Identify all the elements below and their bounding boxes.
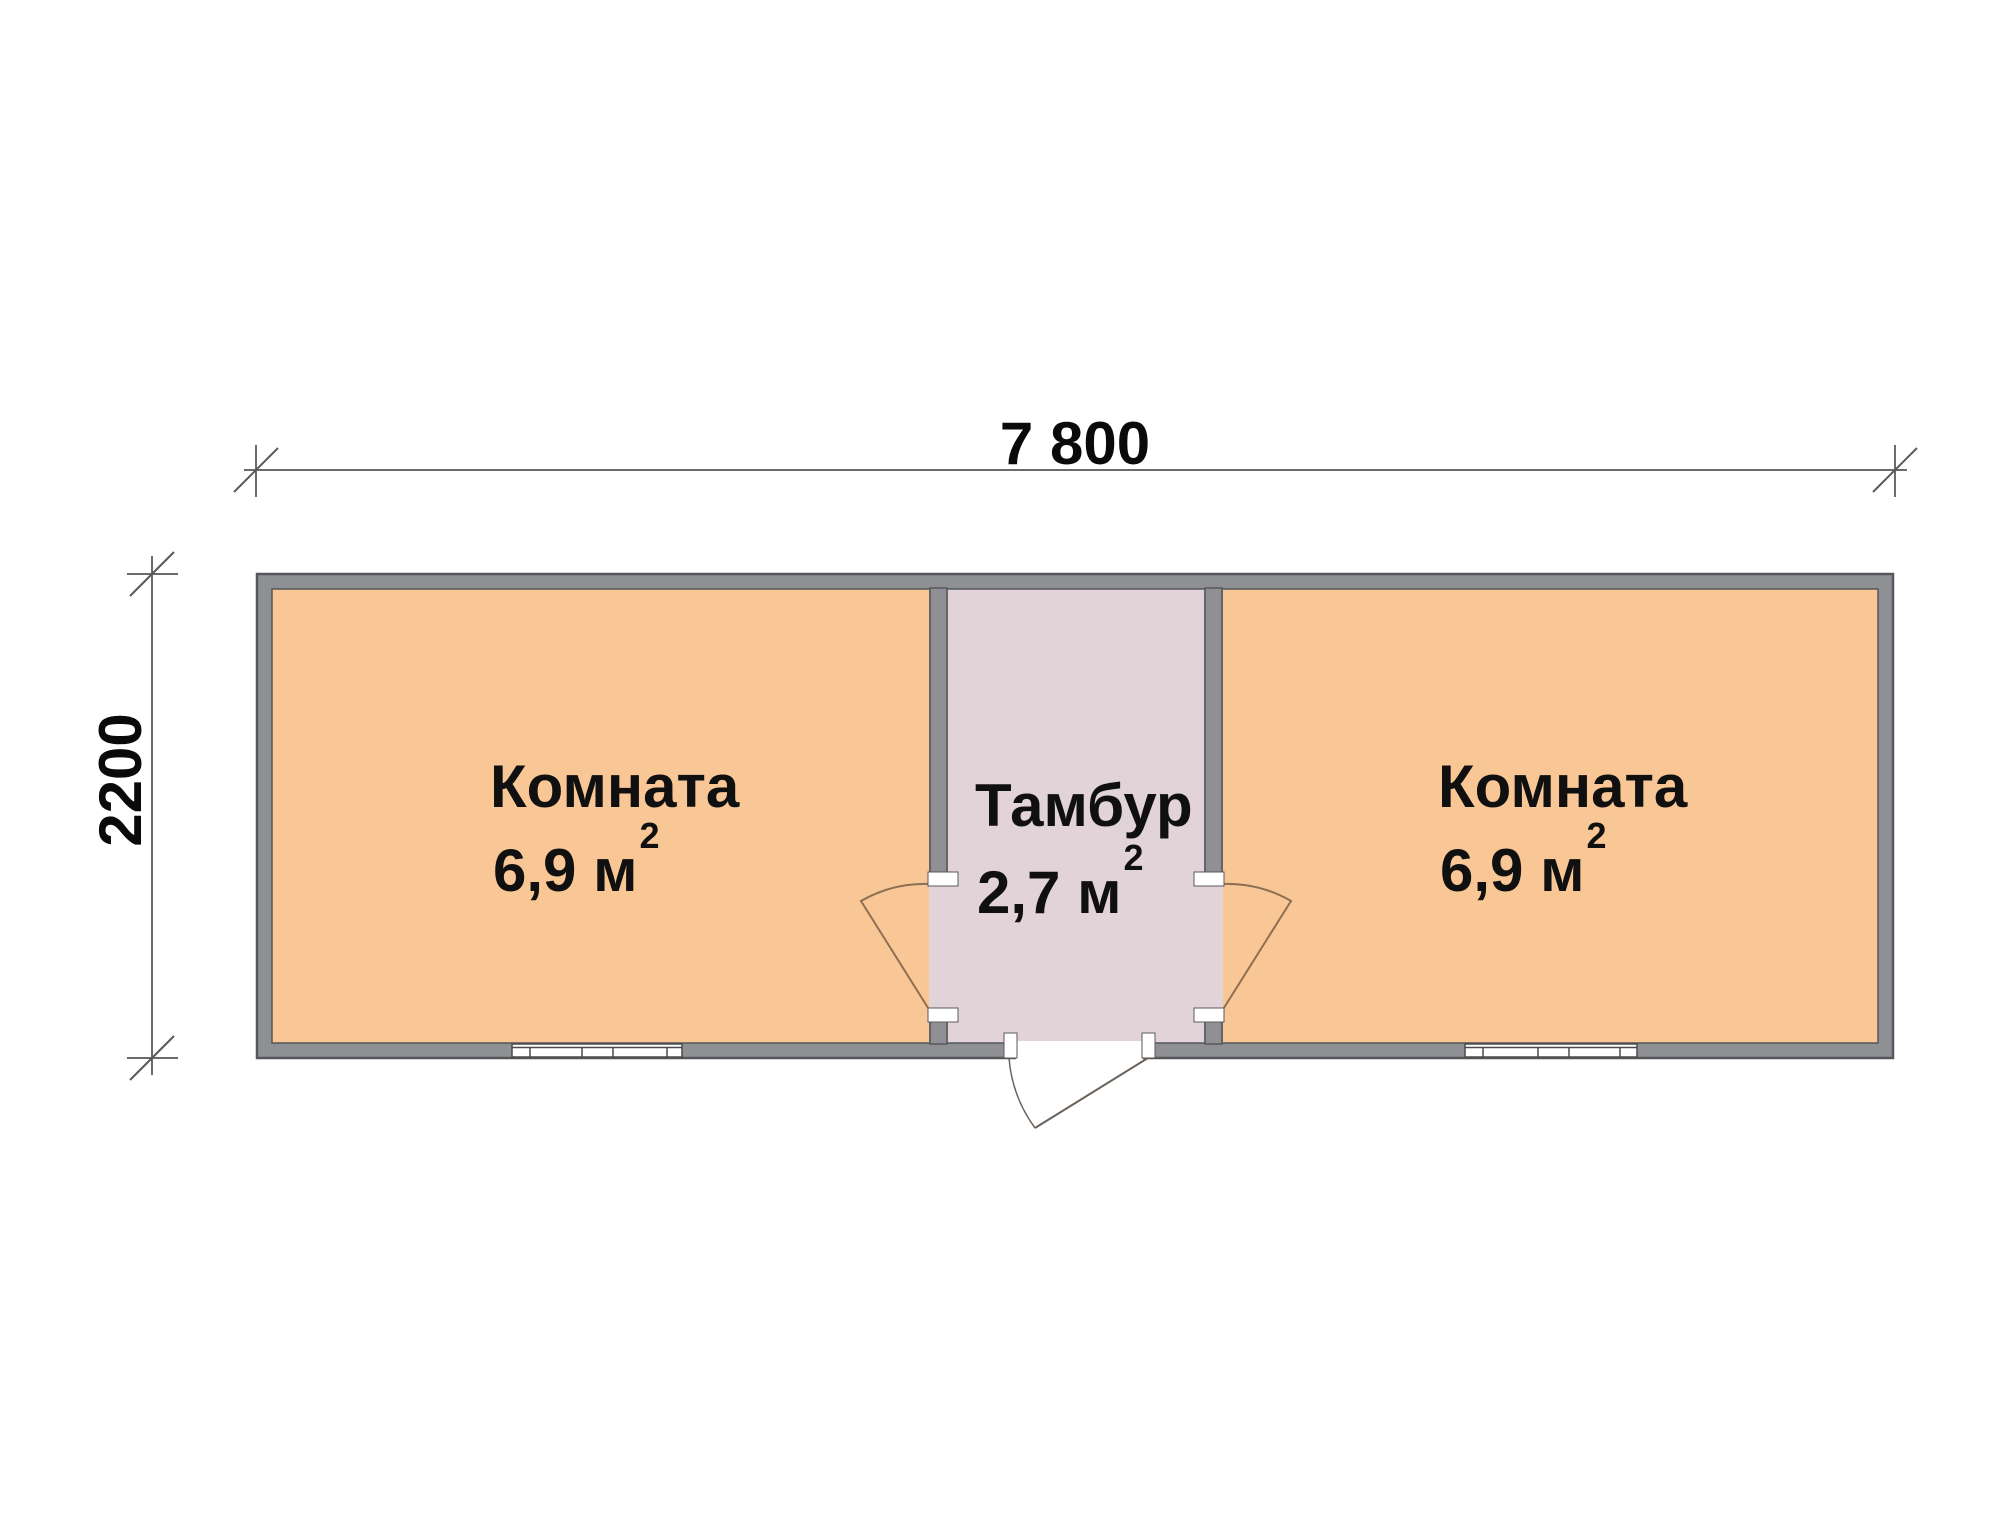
entrance-jamb-right [1142,1033,1155,1058]
room-left-area-label: 6,9 м2 [493,840,658,901]
window-left [512,1044,682,1057]
entrance-opening [1016,1041,1143,1061]
door-jamb-left-top [928,872,958,886]
floor-plan-page: 7 800 2200 Комната 6,9 м2 Тамбур 2,7 м2 … [0,0,2000,1538]
room-right-area-exp: 2 [1586,815,1606,856]
entrance-door-arc [1009,1058,1035,1128]
room-right-name-label: Комната [1438,757,1687,817]
vestibule-area-exp: 2 [1123,837,1143,878]
dim-height-label: 2200 [90,630,152,930]
door-jamb-right-bottom [1194,1008,1224,1022]
door-jamb-right-top [1194,872,1224,886]
vestibule-area-label: 2,7 м2 [977,862,1142,923]
room-right-area-label: 6,9 м2 [1440,840,1605,901]
interior-wall-left-lower [930,1021,947,1044]
interior-wall-left-upper [930,588,947,873]
door-opening-right [1204,884,1223,1014]
interior-wall-right-upper [1205,588,1222,873]
dim-width-label: 7 800 [925,413,1225,475]
door-opening-left [929,884,948,1014]
entrance-door-leaf [1035,1058,1148,1128]
room-right-area-value: 6,9 м [1440,837,1584,904]
interior-wall-right-lower [1205,1021,1222,1044]
floor-plan-canvas [0,0,2000,1538]
window-right [1465,1044,1637,1057]
room-left-name-label: Комната [490,757,739,817]
vestibule-name-label: Тамбур [975,776,1193,836]
room-left-area-value: 6,9 м [493,837,637,904]
entrance-jamb-left [1004,1033,1017,1058]
room-left-area-exp: 2 [639,815,659,856]
door-jamb-left-bottom [928,1008,958,1022]
vestibule-area-value: 2,7 м [977,859,1121,926]
